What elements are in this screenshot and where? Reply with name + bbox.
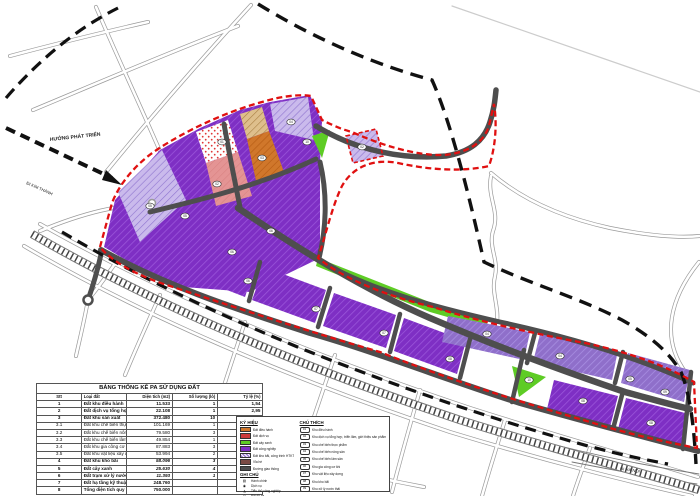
- table-cell: [172, 487, 217, 494]
- col-header-ty-le: Tỷ lệ (%): [217, 394, 262, 401]
- landuse-statistics-table: BẢNG THỐNG KÊ PA SỬ DỤNG ĐẤT Stt Loại đấ…: [36, 383, 263, 495]
- table-cell: 3: [172, 429, 217, 436]
- legend-box: KÝ HIỆU Đất điều hànhĐất dịch vụĐất cây …: [236, 416, 390, 492]
- parcel-marker-label: 08: [581, 399, 585, 403]
- table-cell: 4: [172, 465, 217, 472]
- legend-symbol-row: Đất điều hành: [240, 427, 297, 432]
- legend-annotation-label: Khu gia công cơ khí: [312, 465, 340, 469]
- legend-symbol-label: Đất dịch vụ: [253, 434, 269, 438]
- legend-note-label: Hành chính: [251, 479, 267, 483]
- legend-annotation-number: 09: [300, 486, 310, 492]
- table-cell: 1: [172, 422, 217, 429]
- table-cell: 79.580: [127, 429, 172, 436]
- table-row: 4Đất khu kho bãi58.09637,75: [37, 458, 263, 465]
- legend-note-icon: ◉: [240, 484, 249, 488]
- parcel-marker-label: 06: [230, 250, 234, 254]
- parcel-marker-label: 06: [246, 279, 250, 283]
- legend-annotation-number: 07: [300, 471, 310, 477]
- legend-note-row: ▨Hành chính: [240, 479, 297, 483]
- legend-symbol-row: Đất cây xanh: [240, 440, 297, 445]
- table-row: 3Đất khu sản xuất372.4801049,66: [37, 415, 263, 422]
- legend-color-swatch: [240, 446, 251, 451]
- table-cell: 7: [37, 480, 82, 487]
- legend-annotation-row: 01Khu điều hành: [300, 427, 387, 433]
- parcel-marker-label: 02: [360, 145, 364, 149]
- table-cell: 1: [172, 401, 217, 408]
- table-row: 5Đất cây xanh25.63043,42: [37, 465, 263, 472]
- parcel-marker-label: 08: [649, 421, 653, 425]
- table-cell: 1: [172, 473, 217, 480]
- table-cell: 3: [172, 444, 217, 451]
- legend-annotation-number: 02: [300, 434, 310, 440]
- legend-kyhieu-list: Đất điều hànhĐất dịch vụĐất cây xanhĐất …: [240, 427, 297, 471]
- table-cell: Tổng diện tích quy hoạch: [82, 487, 127, 494]
- table-row: 2Đất dịch vụ tổng hợp22.10812,95: [37, 408, 263, 415]
- table-row: 3.1Đất khu chế biến thực phẩm101.169113,…: [37, 422, 263, 429]
- table-cell: Đất khu chế biến lâm sản: [82, 437, 127, 444]
- legend-annotation-label: Khu dịch vụ tổng hợp, triển lãm, giới th…: [312, 435, 386, 439]
- legend-note-row: ◉Dịch vụ: [240, 484, 297, 488]
- faint-diagonal-line: [452, 6, 700, 92]
- table-cell: Đất khu sản xuất: [82, 415, 127, 422]
- table-cell: Đất hạ tầng kỹ thuật khác: [82, 480, 127, 487]
- label-to-kim-thanh: ĐI KIM THÀNH: [26, 180, 54, 196]
- legend-color-swatch: [240, 466, 251, 471]
- master-plan-page: 0505010203041006060206070708040405080810…: [0, 0, 700, 496]
- table-cell: 10: [172, 415, 217, 422]
- table-cell: 87.883: [127, 444, 172, 451]
- legend-symbol-label: Đất kho bãi, công trình HTKT: [253, 454, 294, 458]
- legend-annotation-row: 05Khu chế biến lâm sản: [300, 457, 387, 463]
- legend-annotation-number: 04: [300, 449, 310, 455]
- legend-note-row: ◮Tiểu thủ công nghiệp: [240, 489, 297, 493]
- legend-color-swatch: [240, 427, 251, 432]
- table-cell: 58.096: [127, 458, 172, 465]
- legend-annotation-label: Khu chế biến lâm sản: [312, 457, 343, 461]
- table-cell: Đất khu vật liệu xây dựng: [82, 451, 127, 458]
- table-row: 3.3Đất khu chế biến lâm sản49.85416,65: [37, 437, 263, 444]
- table-cell: 25.630: [127, 465, 172, 472]
- legend-symbol-label: Đất điều hành: [253, 428, 273, 432]
- roundabout: [84, 296, 93, 305]
- legend-symbol-row: Đất công nghiệp: [240, 446, 297, 451]
- legend-annotation-number: 01: [300, 427, 310, 433]
- legend-annotation-number: 03: [300, 442, 310, 448]
- table-cell: Đất cây xanh: [82, 465, 127, 472]
- table-row: 8Tổng diện tích quy hoạch750.000100,00: [37, 487, 263, 494]
- table-row: 1Đất khu điều hành11.53311,54: [37, 401, 263, 408]
- parcel-marker-label: 10: [527, 378, 531, 382]
- table-cell: 3.3: [37, 437, 82, 444]
- table-cell: 372.480: [127, 415, 172, 422]
- legend-note-icon: ◮: [240, 489, 249, 493]
- table-cell: 2,95: [217, 408, 262, 415]
- parcel-marker-label: 04: [289, 120, 293, 124]
- parcel-marker-label: 10: [305, 140, 309, 144]
- legend-annotation-row: 08Khu kho bãi: [300, 479, 387, 485]
- table-cell: 53.994: [127, 451, 172, 458]
- table-cell: Đất khu gia công cơ khí: [82, 444, 127, 451]
- table-cell: Đất trạm xử lý nước thải: [82, 473, 127, 480]
- parcel-marker-label: 07: [382, 331, 386, 335]
- table-cell: 2: [37, 408, 82, 415]
- parcel-marker-label: 05: [183, 214, 187, 218]
- legend-note-icon: ▨: [240, 479, 249, 483]
- table-cell: 11.393: [127, 473, 172, 480]
- table-row: 3.4Đất khu gia công cơ khí87.883311,72: [37, 444, 263, 451]
- col-header-dien-tich: Diện tích (m2): [127, 394, 172, 401]
- parcel-marker-label: 08: [448, 357, 452, 361]
- parcel-marker-label: 09: [663, 390, 667, 394]
- legend-annotation-number: 08: [300, 479, 310, 485]
- table-title-row: BẢNG THỐNG KÊ PA SỬ DỤNG ĐẤT: [37, 384, 263, 394]
- table-header-row: Stt Loại đất Diện tích (m2) Số lượng (lô…: [37, 394, 263, 401]
- table-cell: 750.000: [127, 487, 172, 494]
- legend-chuthich-list: 01Khu điều hành02Khu dịch vụ tổng hợp, t…: [300, 427, 387, 492]
- table-cell: 4: [37, 458, 82, 465]
- table-cell: Đất dịch vụ tổng hợp: [82, 408, 127, 415]
- table-cell: Đất khu chế biến nông sản: [82, 429, 127, 436]
- table-title: BẢNG THỐNG KÊ PA SỬ DỤNG ĐẤT: [37, 384, 263, 394]
- legend-annotation-row: 09Khu xử lý nước thải: [300, 486, 387, 492]
- table-cell: 3.1: [37, 422, 82, 429]
- legend-symbol-label: Vỉa hè: [253, 460, 262, 464]
- table-cell: 1: [172, 408, 217, 415]
- parcel-marker-label: 01: [220, 140, 224, 144]
- table-row: 7Đất hạ tầng kỹ thuật khác248.76033,17: [37, 480, 263, 487]
- legend-right-column: CHÚ THÍCH 01Khu điều hành02Khu dịch vụ t…: [297, 419, 387, 489]
- table-cell: Đất khu kho bãi: [82, 458, 127, 465]
- table-cell: 22.108: [127, 408, 172, 415]
- parcel-marker-label: 02: [215, 182, 219, 186]
- legend-symbol-label: Đường giao thông: [253, 467, 279, 471]
- legend-left-column: KÝ HIỆU Đất điều hànhĐất dịch vụĐất cây …: [240, 419, 297, 489]
- legend-color-swatch: [240, 459, 251, 464]
- col-header-stt: Stt: [37, 394, 82, 401]
- legend-note-label: Dịch vụ: [251, 484, 262, 488]
- legend-annotation-label: Khu điều hành: [312, 428, 333, 432]
- legend-color-swatch: [240, 440, 251, 445]
- parcel-marker-label: 05: [628, 377, 632, 381]
- table-cell: 11.533: [127, 401, 172, 408]
- legend-symbol-label: Đất cây xanh: [253, 441, 272, 445]
- legend-annotation-row: 02Khu dịch vụ tổng hợp, triển lãm, giới …: [300, 434, 387, 440]
- legend-annotation-label: Khu vật liệu xây dựng: [312, 472, 343, 476]
- legend-annotation-label: Khu xử lý nước thải: [312, 487, 340, 491]
- parcel-marker-label: 04: [558, 354, 562, 358]
- table-cell: 6: [37, 473, 82, 480]
- table-cell: 101.169: [127, 422, 172, 429]
- table-cell: 248.760: [127, 480, 172, 487]
- table-cell: Đất khu điều hành: [82, 401, 127, 408]
- legend-ghichu-list: ▨Hành chính◉Dịch vụ◮Tiểu thủ công nghiệp…: [240, 479, 297, 496]
- table-row: 3.2Đất khu chế biến nông sản79.580310,61: [37, 429, 263, 436]
- legend-note-label: Tiểu thủ công nghiệp: [251, 489, 281, 493]
- parcel-marker-label: 06: [269, 229, 273, 233]
- table-row: 3.5Đất khu vật liệu xây dựng53.99427,20: [37, 451, 263, 458]
- hook-road: [316, 90, 496, 157]
- label-development-direction: HƯỚNG PHÁT TRIỂN: [49, 130, 101, 143]
- table-cell: 3: [37, 415, 82, 422]
- legend-annotation-label: Khu chế biến nông sản: [312, 450, 345, 454]
- legend-color-swatch: [240, 433, 251, 438]
- table-cell: [172, 480, 217, 487]
- legend-ghichu-title: GHI CHÚ: [240, 472, 297, 477]
- legend-symbol-row: Đất kho bãi, công trình HTKT: [240, 453, 297, 458]
- table-cell: 3: [172, 458, 217, 465]
- legend-annotation-number: 05: [300, 457, 310, 463]
- parcel-marker-label: 05: [148, 204, 152, 208]
- table-cell: 3.4: [37, 444, 82, 451]
- table-cell: 1: [37, 401, 82, 408]
- legend-annotation-label: Khu kho bãi: [312, 480, 329, 484]
- legend-annotation-row: 07Khu vật liệu xây dựng: [300, 471, 387, 477]
- table-row: 6Đất trạm xử lý nước thải11.39311,52: [37, 473, 263, 480]
- table-cell: Đất khu chế biến thực phẩm: [82, 422, 127, 429]
- table-cell: 3.5: [37, 451, 82, 458]
- legend-symbol-label: Đất công nghiệp: [253, 447, 276, 451]
- legend-chuthich-title: CHÚ THÍCH: [300, 420, 387, 425]
- table-cell: 1,54: [217, 401, 262, 408]
- table-cell: 5: [37, 465, 82, 472]
- legend-kyhieu-title: KÝ HIỆU: [240, 420, 297, 425]
- table-cell: 8: [37, 487, 82, 494]
- table-cell: 3.2: [37, 429, 82, 436]
- legend-annotation-label: Khu chế biến thực phẩm: [312, 443, 347, 447]
- col-header-so-luong: Số lượng (lô): [172, 394, 217, 401]
- table-cell: 2: [172, 451, 217, 458]
- table-cell: 49.854: [127, 437, 172, 444]
- legend-symbol-row: Vỉa hè: [240, 459, 297, 464]
- table-cell: 1: [172, 437, 217, 444]
- legend-symbol-row: Đường giao thông: [240, 466, 297, 471]
- legend-annotation-number: 06: [300, 464, 310, 470]
- legend-annotation-row: 03Khu chế biến thực phẩm: [300, 442, 387, 448]
- legend-annotation-row: 06Khu gia công cơ khí: [300, 464, 387, 470]
- parcel-marker-label: 03: [260, 156, 264, 160]
- legend-color-swatch: [240, 453, 251, 458]
- legend-symbol-row: Đất dịch vụ: [240, 433, 297, 438]
- parcel-marker-label: 04: [485, 332, 489, 336]
- col-header-loai-dat: Loại đất: [82, 394, 127, 401]
- parcel-marker-label: 07: [314, 307, 318, 311]
- legend-annotation-row: 04Khu chế biến nông sản: [300, 449, 387, 455]
